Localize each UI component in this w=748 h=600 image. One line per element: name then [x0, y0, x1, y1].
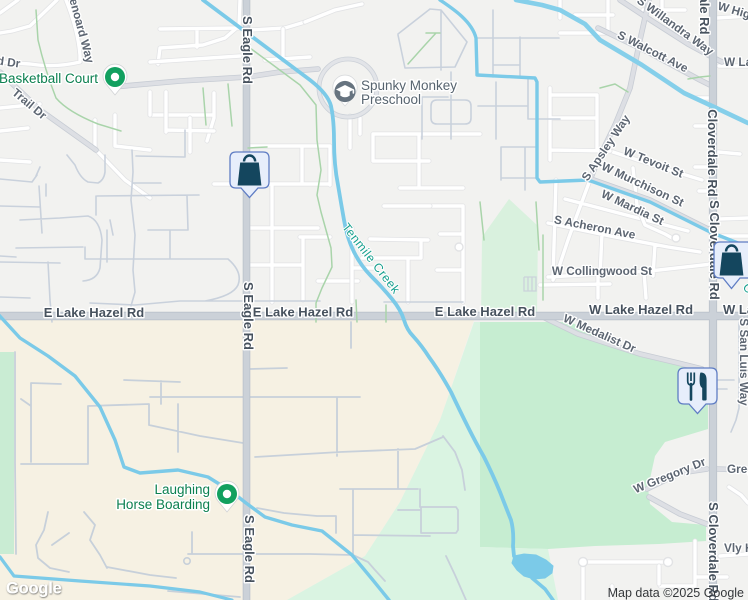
svg-text:S Eagle Rd: S Eagle Rd	[241, 282, 256, 350]
svg-text:E Lake Hazel Rd: E Lake Hazel Rd	[44, 305, 144, 320]
svg-text:W La: W La	[724, 55, 748, 69]
svg-text:Laughing: Laughing	[154, 482, 210, 497]
svg-text:Greg: Greg	[727, 462, 748, 476]
svg-text:S San Luis Way: S San Luis Way	[737, 318, 748, 406]
svg-text:Google: Google	[6, 580, 62, 598]
svg-text:Vly H: Vly H	[724, 541, 748, 555]
svg-text:Horse Boarding: Horse Boarding	[116, 497, 210, 512]
svg-text:Spunky Monkey: Spunky Monkey	[361, 78, 457, 93]
svg-text:W Lake: W Lake	[723, 302, 748, 317]
svg-text:Preschool: Preschool	[361, 92, 421, 107]
svg-text:d Dr: d Dr	[0, 53, 22, 70]
svg-text:E Lake Hazel Rd: E Lake Hazel Rd	[435, 304, 535, 319]
svg-text:S Eagle Rd: S Eagle Rd	[242, 515, 257, 583]
svg-text:W Collingwood St: W Collingwood St	[552, 264, 652, 278]
svg-text:W Lake Hazel Rd: W Lake Hazel Rd	[589, 302, 693, 317]
svg-text:E Lake Hazel Rd: E Lake Hazel Rd	[253, 305, 353, 320]
svg-text:ale Rd: ale Rd	[697, 0, 712, 35]
svg-text:Cloverdale Rd: Cloverdale Rd	[705, 109, 720, 196]
svg-text:Basketball Court: Basketball Court	[0, 71, 98, 86]
svg-text:S Eagle Rd: S Eagle Rd	[240, 16, 255, 84]
svg-text:Map data ©2025 Google: Map data ©2025 Google	[608, 586, 744, 600]
